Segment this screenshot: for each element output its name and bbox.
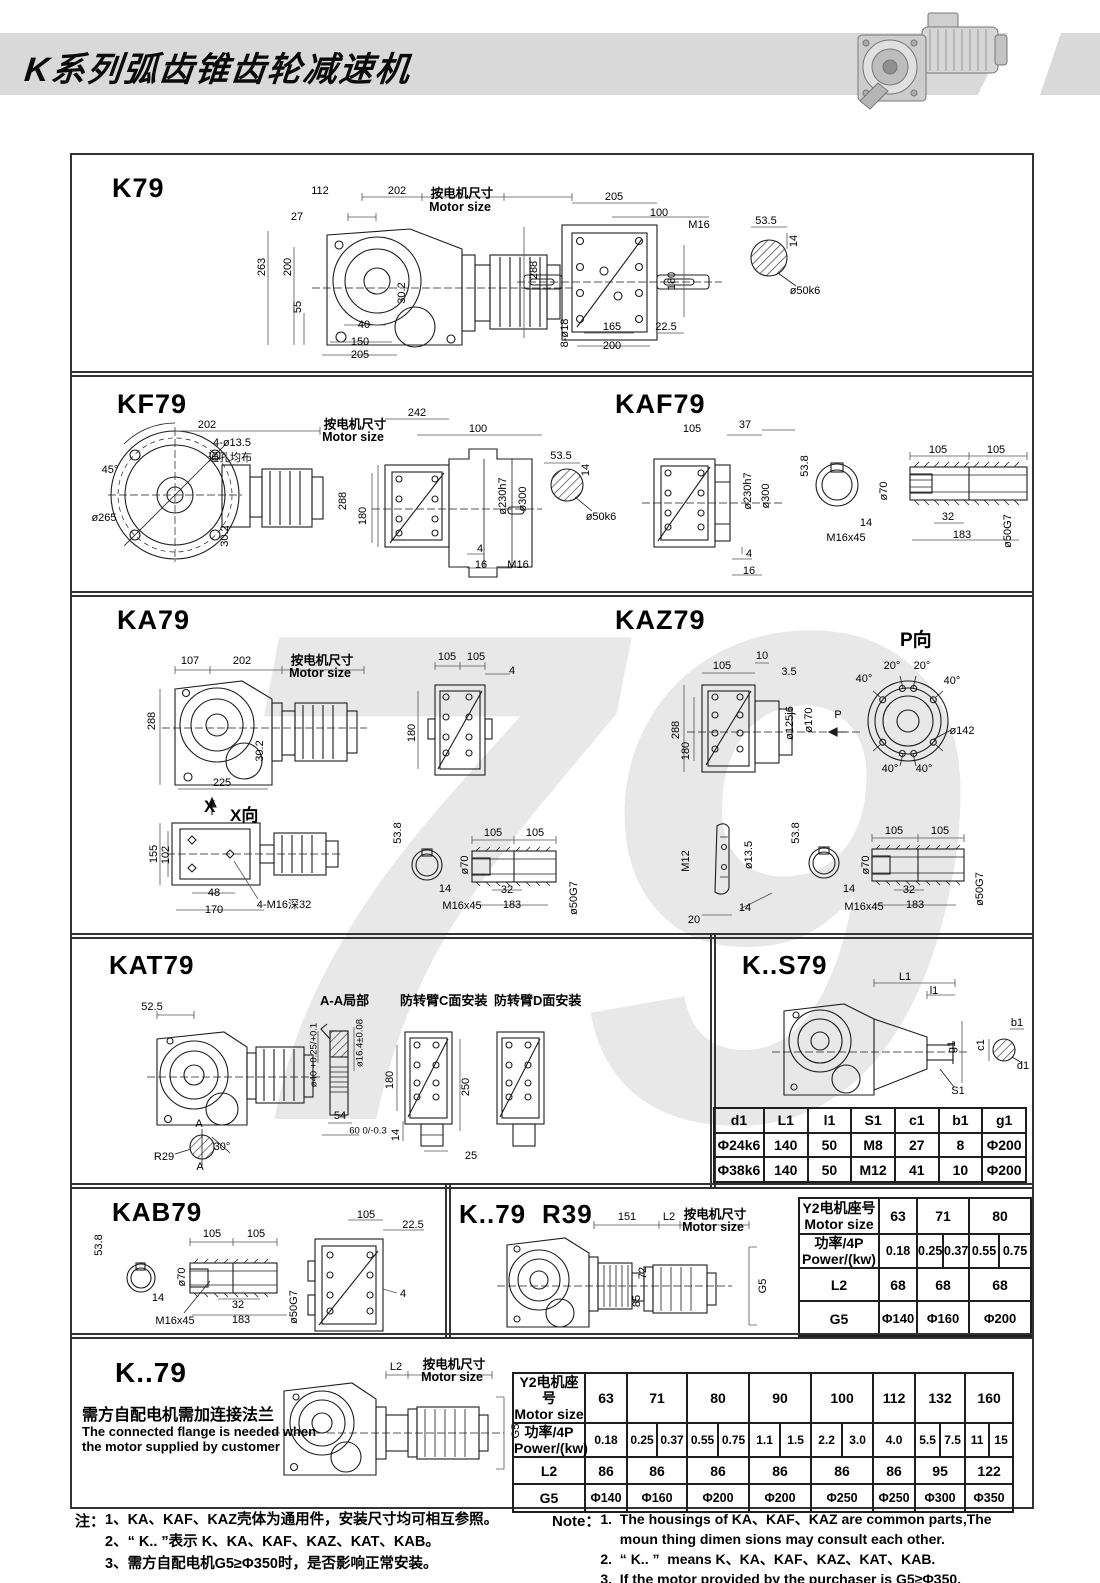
k79-drawing <box>72 155 1028 371</box>
note-line: 3. If the motor provided by the purchase… <box>600 1570 991 1583</box>
section-title: K..S79 <box>742 950 828 981</box>
dim-label: 288 <box>670 721 682 739</box>
panel-ks79: K..S79 L1 l1 g1 S1 c1 b1 d1 d1L1 l1S1 c1… <box>710 933 1034 1189</box>
dim-label: 32 <box>501 884 513 896</box>
dim-label: 3.5 <box>781 666 796 678</box>
page-title: K系列弧齿锥齿轮减速机 <box>22 42 414 91</box>
dim-label: ø50G7 <box>288 1290 300 1324</box>
dim-label: 105 <box>526 827 544 839</box>
notes-english: Note： 1. The housings of KA、KAF、KAZ are … <box>552 1510 1062 1583</box>
table-row: Φ38k6140 50M12 4110 Φ200 <box>714 1157 1026 1182</box>
dim-label: 105 <box>929 444 947 456</box>
dim-label: M16 <box>507 559 528 571</box>
motor-size-label-en: Motor size <box>421 1370 483 1384</box>
dim-label: M16x45 <box>155 1315 194 1327</box>
dim-label: 105 <box>357 1209 375 1221</box>
dim-label: 53.8 <box>93 1234 105 1255</box>
dim-label: d1 <box>1017 1060 1029 1072</box>
aa-detail-label: A-A局部 <box>320 990 369 1009</box>
dim-label: A <box>196 1161 203 1173</box>
section-title-r39: R39 <box>542 1199 593 1230</box>
dim-label: ø50G7 <box>974 872 986 906</box>
dim-label: ø70 <box>459 856 471 875</box>
dim-label: 14 <box>843 883 855 895</box>
dim-label: 22.5 <box>402 1219 423 1231</box>
dim-label: 45° <box>102 464 119 476</box>
dim-label: 112 <box>311 185 329 197</box>
table-row-power: 功率/4PPower/(kw) 0.18 0.25 0.37 0.55 0.75… <box>513 1423 1013 1457</box>
notes-en-label: Note： <box>552 1510 600 1583</box>
k79-spec-table: Y2电机座号Motor size 63 71 80 90 100 112 132… <box>512 1372 1012 1495</box>
dim-label: 202 <box>233 655 251 667</box>
dim-label: 102 <box>160 846 172 864</box>
dim-label: 151 <box>618 1211 636 1223</box>
dim-label: 32 <box>903 884 915 896</box>
dim-label: 105 <box>247 1228 265 1240</box>
dim-label: 通孔均布 <box>208 449 252 465</box>
motor-size-label-en: Motor size <box>429 200 491 214</box>
dim-label: 20 <box>688 914 700 926</box>
dim-label: 250 <box>460 1078 472 1096</box>
dim-label: 4 <box>400 1288 406 1300</box>
dim-label: 200 <box>603 340 621 352</box>
flange-note-cn: 需方自配电机需加连接法兰 <box>82 1401 274 1425</box>
dim-label: l1 <box>930 985 939 997</box>
dim-label: M12 <box>680 850 692 871</box>
dim-label: 105 <box>931 825 949 837</box>
dim-label: ø265 <box>91 512 116 524</box>
dim-label: 180 <box>406 724 418 742</box>
r39-spec-table: Y2电机座号Motor size 63 71 80 功率/4PPower/(kw… <box>798 1197 1030 1335</box>
panel-kab79: KAB79 53.8 14 M16x45 105 105 ø70 32 183 … <box>70 1183 451 1339</box>
dim-label: 105 <box>683 423 701 435</box>
panel-ka79-kaz79: KA79 KAZ79 按电机尺寸 Motor size P向 X X向 107 … <box>70 591 1034 939</box>
dim-label: ø125j6 <box>784 706 796 740</box>
x-marker: X <box>204 797 215 817</box>
dim-label: 105 <box>885 825 903 837</box>
x-view-label: X向 <box>230 801 258 826</box>
dim-label: ø50k6 <box>790 285 821 297</box>
section-title: K..79 <box>459 1199 526 1230</box>
dim-label: 183 <box>953 529 971 541</box>
dim-label: 60 0/-0.3 <box>349 1126 387 1137</box>
dim-label: 14 <box>860 517 872 529</box>
dim-label: 32 <box>942 511 954 523</box>
table-row-motor-size: Y2电机座号Motor size 63 71 80 <box>799 1198 1031 1234</box>
dim-label: ø230h7 <box>742 472 754 509</box>
panel-k79-r39: K..79 R39 151 L2 按电机尺寸 Motor size 72 85 … <box>445 1183 1034 1339</box>
dim-label: 155 <box>148 845 160 863</box>
dim-label: M16x45 <box>442 900 481 912</box>
panel-kf79-kaf79: KF79 KAF79 按电机尺寸 Motor size 202 4-ø13.5 … <box>70 371 1034 597</box>
dim-label: 205 <box>605 191 623 203</box>
note-line: 1. The housings of KA、KAF、KAZ are common… <box>600 1510 991 1530</box>
dim-label: M16x45 <box>844 901 883 913</box>
dim-label: 180 <box>666 272 678 290</box>
dim-label: 4 <box>509 665 515 677</box>
section-title: KA79 <box>117 605 190 636</box>
dim-label: 202 <box>388 185 406 197</box>
dim-label: ø50G7 <box>1002 514 1014 548</box>
dim-label: 37 <box>739 419 751 431</box>
notes-cn-label: 注： <box>75 1510 105 1575</box>
dim-label: 53.8 <box>790 822 802 843</box>
dim-label: 40° <box>944 675 961 687</box>
flange-note-en2: the motor supplied by customer <box>82 1439 280 1454</box>
dim-label: 32 <box>232 1299 244 1311</box>
dim-label: 16 <box>743 565 755 577</box>
note-line: 2. “ K.. ” means K、KA、KAF、KAZ、KAT、KAB. <box>600 1550 991 1570</box>
ks79-dim-table: d1L1 l1S1 c1b1 g1 Φ24k6140 50M8 278 Φ200… <box>713 1107 1027 1183</box>
dim-label: 288 <box>528 261 540 279</box>
dim-label: ø70 <box>860 856 872 875</box>
dim-label: 10 <box>756 650 768 662</box>
dim-label: 288 <box>337 492 349 510</box>
dim-label: 4-ø13.5 <box>213 437 251 449</box>
dim-label: 14 <box>580 464 592 476</box>
motor-size-label-cn: 按电机尺寸 <box>431 183 494 202</box>
table-row-g5: G5 Φ140 Φ160 Φ200 Φ200 Φ250 Φ250 Φ300 Φ3… <box>513 1484 1013 1512</box>
dim-label: 105 <box>438 651 456 663</box>
dim-label: 180 <box>384 1071 396 1089</box>
dim-label: 85 <box>631 1295 643 1307</box>
arm-d-label: 防转臂D面安装 <box>494 990 581 1009</box>
dim-label: 105 <box>203 1228 221 1240</box>
dim-label: G5 <box>757 1279 769 1294</box>
dim-label: 180 <box>680 742 692 760</box>
dim-label: 22.5 <box>655 321 676 333</box>
dim-label: 30.2 <box>396 282 408 303</box>
dim-label: 170 <box>205 904 223 916</box>
dim-label: 48 <box>208 887 220 899</box>
note-line: 1、KA、KAF、KAZ壳体为通用件，安装尺寸均可相互参照。 <box>105 1510 498 1532</box>
dim-label: 105 <box>713 660 731 672</box>
dim-label: 183 <box>232 1314 250 1326</box>
table-row-l2: L2 86 86 86 86 86 86 95 122 <box>513 1457 1013 1484</box>
dim-label: 100 <box>650 207 668 219</box>
dim-label: 202 <box>198 419 216 431</box>
dim-label: A <box>195 1118 202 1130</box>
dim-label: ø230h7 <box>497 477 509 514</box>
dim-label: 53.8 <box>799 455 811 476</box>
dim-label: ø300 <box>517 486 529 511</box>
dim-label: 183 <box>906 899 924 911</box>
dim-label: 4-M16深32 <box>257 896 311 912</box>
table-row-l2: L2 68 68 68 <box>799 1268 1031 1301</box>
dim-label: 40° <box>882 763 899 775</box>
dim-label: g1 <box>946 1041 958 1053</box>
dim-label: 4 <box>746 548 752 560</box>
table-row-power: 功率/4PPower/(kw) 0.18 0.25 0.37 0.55 0.75 <box>799 1234 1031 1268</box>
dim-label: ø40 +0.25/+0.1 <box>309 1023 320 1087</box>
dim-label: S1 <box>951 1085 964 1097</box>
dim-label: 53.5 <box>550 450 571 462</box>
dim-label: 14 <box>390 1129 402 1141</box>
dim-label: R29 <box>154 1151 174 1163</box>
dim-label: ø50G7 <box>568 881 580 915</box>
section-title: KAF79 <box>615 389 706 420</box>
dim-label: 20° <box>914 660 931 672</box>
product-photo <box>850 5 1020 113</box>
panel-k79: K79 按电机尺寸 Motor size 112 202 27 263 200 … <box>70 153 1034 377</box>
dim-label: M16x45 <box>826 532 865 544</box>
dim-label: 263 <box>256 258 268 276</box>
dim-label: M16 <box>688 219 709 231</box>
motor-size-label-en: Motor size <box>682 1220 744 1234</box>
table-row-motor-size: Y2电机座号Motor size 63 71 80 90 100 112 132… <box>513 1373 1013 1423</box>
dim-label: ø70 <box>176 1268 188 1287</box>
section-title: KF79 <box>117 389 187 420</box>
dim-label: 30.2 <box>254 740 266 761</box>
dim-label: c1 <box>975 1039 987 1051</box>
section-title: KAT79 <box>109 950 194 981</box>
dim-label: 14 <box>788 235 800 247</box>
dim-label: 180 <box>357 507 369 525</box>
table-row-g5: G5 Φ140 Φ160 Φ200 <box>799 1301 1031 1336</box>
dim-label: 40° <box>916 763 933 775</box>
dim-label: 53.8 <box>392 822 404 843</box>
motor-size-label-en: Motor size <box>289 666 351 680</box>
dim-label: 150 <box>351 336 369 348</box>
dim-label: 54 <box>334 1110 346 1122</box>
dim-label: 52.5 <box>141 1001 162 1013</box>
section-title: K..79 <box>115 1357 187 1389</box>
dim-label: 288 <box>146 712 158 730</box>
dim-label: 205 <box>351 349 369 361</box>
dim-label: 30.2 <box>219 525 231 546</box>
dim-label: 25 <box>465 1150 477 1162</box>
dim-label: ø170 <box>803 707 815 732</box>
table-row: Φ24k6140 50M8 278 Φ200 <box>714 1133 1026 1158</box>
dim-label: 165 <box>603 321 621 333</box>
panel-kat79: KAT79 A-A局部 防转臂C面安装 防转臂D面安装 52.5 R29 30°… <box>70 933 716 1189</box>
dim-label: 72 <box>637 1267 649 1279</box>
dim-label: 14 <box>152 1292 164 1304</box>
dim-label: 225 <box>213 777 231 789</box>
notes-chinese: 注： 1、KA、KAF、KAZ壳体为通用件，安装尺寸均可相互参照。 2、“ K.… <box>75 1510 555 1575</box>
p-view-label: P向 <box>900 625 932 652</box>
dim-label: L2 <box>663 1211 675 1223</box>
dim-label: 105 <box>987 444 1005 456</box>
dim-label: ø16.4±0.08 <box>355 1019 366 1067</box>
section-title: KAZ79 <box>615 605 706 636</box>
dim-label: ø70 <box>878 482 890 501</box>
dim-label: 55 <box>292 301 304 313</box>
dim-label: 8-ø18 <box>559 319 571 348</box>
flange-note-en1: The connected flange is needed when <box>82 1424 316 1439</box>
dim-label: 14 <box>739 902 751 914</box>
dim-label: 105 <box>467 651 485 663</box>
dim-label: ø142 <box>949 725 974 737</box>
dim-label: 105 <box>484 827 502 839</box>
section-title: K79 <box>112 173 165 204</box>
dim-label: 16 <box>475 559 487 571</box>
table-header-row: d1L1 l1S1 c1b1 g1 <box>714 1108 1026 1133</box>
dim-label: 200 <box>282 258 294 276</box>
dim-label: 100 <box>469 423 487 435</box>
dim-label: 183 <box>503 899 521 911</box>
dim-label: 40 <box>358 319 370 331</box>
motor-size-label-en: Motor size <box>322 430 384 444</box>
dim-label: 20° <box>884 660 901 672</box>
note-line: 2、“ K.. ”表示 K、KA、KAF、KAZ、KAT、KAB。 <box>105 1532 498 1554</box>
note-line: 3、需方自配电机G5≥Φ350时，是否影响正常安装。 <box>105 1554 498 1576</box>
dim-label: L2 <box>390 1361 402 1373</box>
dim-label: P <box>834 709 841 721</box>
dim-label: 107 <box>181 655 199 667</box>
catalog-page: 79 K系列弧齿锥齿轮减速机 <box>0 0 1100 1583</box>
dim-label: 242 <box>408 407 426 419</box>
dim-label: 14 <box>439 883 451 895</box>
dim-label: ø50k6 <box>586 511 617 523</box>
dim-label: 40° <box>856 673 873 685</box>
dim-label: L1 <box>899 971 911 983</box>
panel-k79-bottom: K..79 需方自配电机需加连接法兰 The connected flange … <box>70 1333 1034 1509</box>
header-band-right <box>1040 33 1100 95</box>
note-line: moun thing dimen sions may consult each … <box>600 1530 991 1550</box>
dim-label: 27 <box>291 211 303 223</box>
section-title: KAB79 <box>112 1197 202 1228</box>
arm-c-label: 防转臂C面安装 <box>400 990 487 1009</box>
dim-label: ø300 <box>760 483 772 508</box>
dim-label: ø13.5 <box>743 841 755 869</box>
dim-label: 53.5 <box>755 215 776 227</box>
dim-label: 4 <box>477 543 483 555</box>
dim-label: b1 <box>1011 1017 1023 1029</box>
dim-label: 30° <box>214 1141 231 1153</box>
